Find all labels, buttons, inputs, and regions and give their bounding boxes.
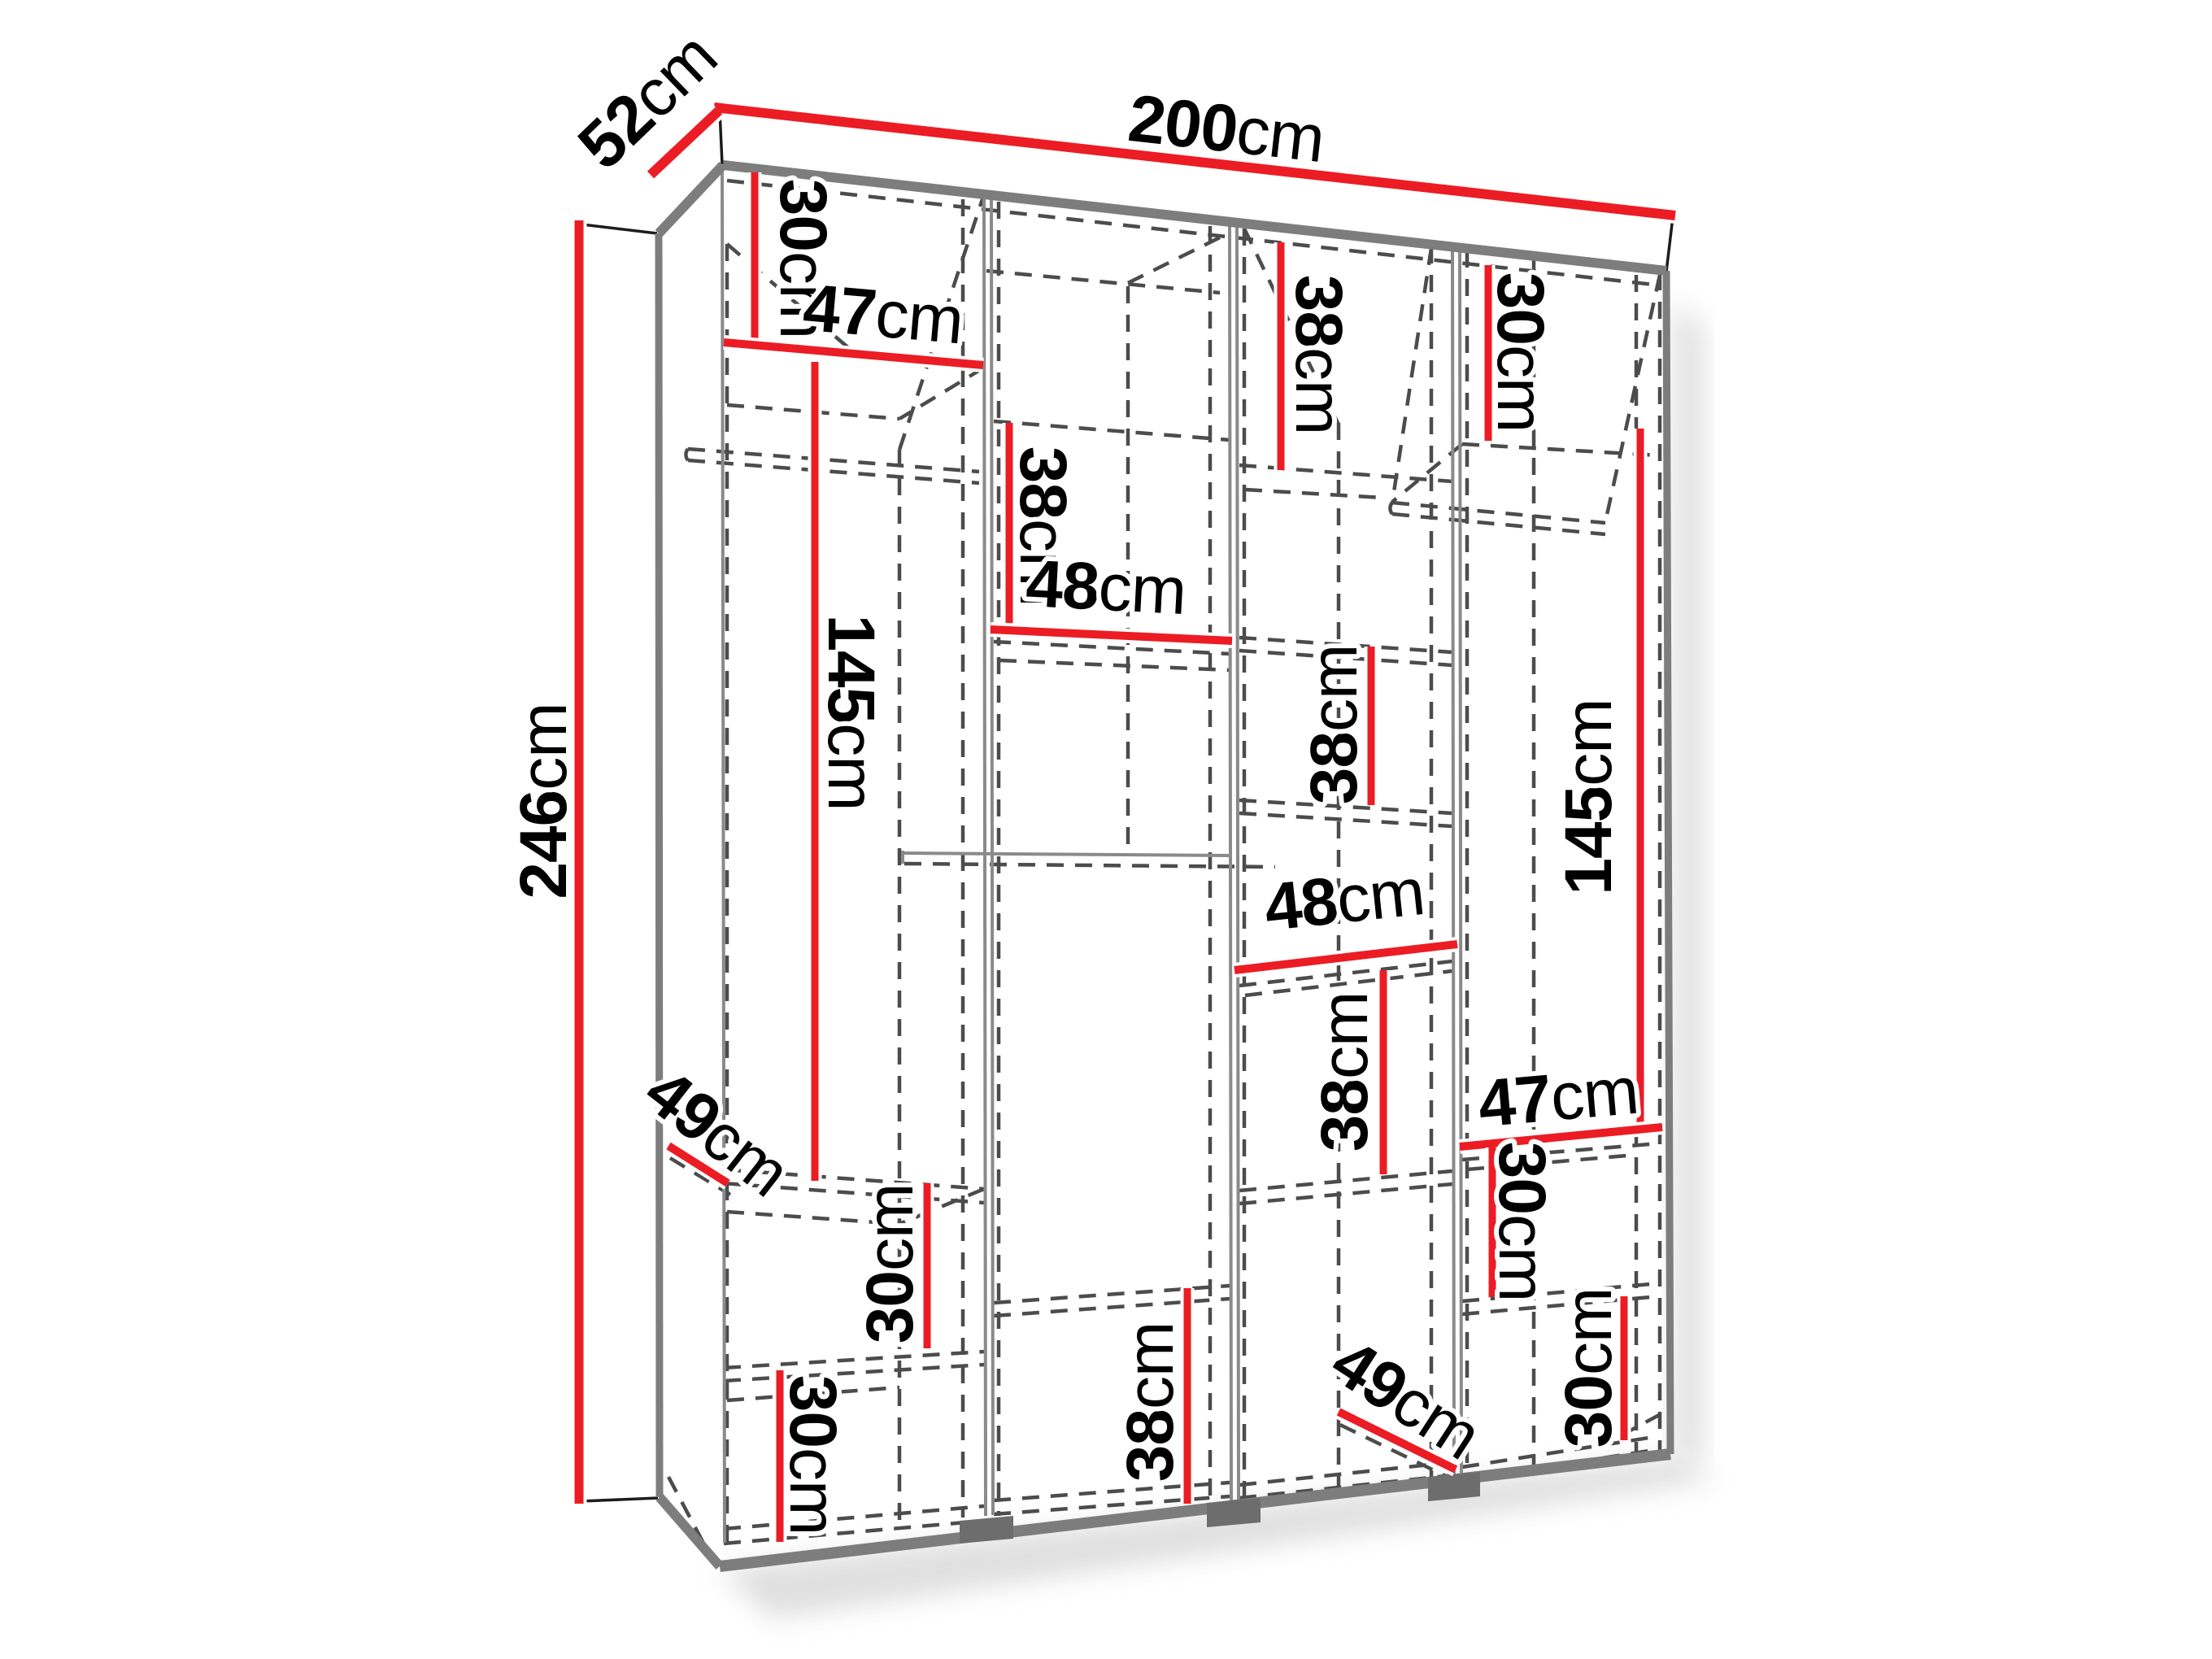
- col3-shelf3-front-bottom: [1239, 813, 1452, 826]
- height-dim-tick-top: [582, 224, 657, 233]
- partition-3-left: [1452, 248, 1454, 1481]
- dim-label-unit: cm: [1552, 1288, 1626, 1375]
- dim-label-value: 47: [1475, 1061, 1554, 1141]
- top-front-edge: [723, 165, 1666, 271]
- dim-label-col4_hanging_height: 145cm: [1552, 699, 1626, 895]
- right-side-shadow: [1672, 301, 1705, 1464]
- dim-label-col4_shelf_height_lower: 30cm: [1552, 1288, 1626, 1448]
- col3-shelf1-front: [1239, 465, 1452, 481]
- col1-rail-top: [688, 449, 979, 472]
- col1-floor-front: [724, 1506, 984, 1529]
- dim-label-value: 145: [1552, 786, 1626, 895]
- dim-label-col3_lower_shelf_height: 38cm: [1308, 992, 1382, 1152]
- col4-rail-bottom: [1392, 514, 1605, 534]
- dim-label-unit: cm: [1297, 645, 1371, 732]
- dim-label-col4_shelf_height_upper: 30cm: [1485, 1142, 1559, 1302]
- base-left-edge: [660, 1497, 720, 1566]
- col2-hanging-rail: [903, 853, 1229, 856]
- partition-3-right: [1460, 249, 1461, 1480]
- dim-label-value: 200: [1125, 81, 1241, 167]
- dim-label-total_height: 246cm: [507, 703, 581, 899]
- dim-label-value: 38: [1006, 446, 1080, 519]
- dim-label-value: 30: [1483, 272, 1557, 345]
- dim-label-unit: cm: [1485, 1214, 1559, 1301]
- col4-back-top-diagonal: [1605, 275, 1660, 522]
- dim-label-unit: cm: [1233, 94, 1328, 176]
- dim-label-col3_top_shelf_height: 38cm: [1282, 275, 1356, 435]
- dim-label-col2_width: 48cm: [1024, 546, 1187, 629]
- top-right-corner-edge: [1666, 217, 1673, 272]
- diagram-stage: 200cm52cm246cm30cm47cm38cm30cm38cm48cm14…: [0, 0, 2212, 1659]
- foot-partition-3: [1428, 1472, 1480, 1501]
- dim-label-col1_shelf_height_mid: 30cm: [853, 1184, 927, 1344]
- floor-shadow: [719, 1457, 1716, 1618]
- top-left-depth-edge: [659, 165, 723, 233]
- dim-label-col1_hanging_height: 145cm: [814, 614, 888, 810]
- col3-shelf1-back: [1245, 490, 1382, 498]
- dim-label-value: 47: [800, 271, 879, 351]
- dim-label-value: 145: [814, 614, 888, 723]
- dim-label-col2_bottom_shelf_height: 38cm: [1113, 1322, 1187, 1483]
- dim-label-unit: cm: [1308, 992, 1382, 1079]
- dim-label-unit: cm: [1113, 1322, 1187, 1409]
- dim-label-value: 48: [1261, 864, 1341, 945]
- col2-back-top-diagonal: [1128, 237, 1220, 283]
- dim-label-unit: cm: [507, 703, 581, 790]
- right-outer-edge: [1666, 271, 1670, 1454]
- col2-shelf1-front: [994, 421, 1230, 440]
- left-panel-inner-edge: [722, 167, 725, 1543]
- dim-label-col4_top_shelf_height: 30cm: [1483, 272, 1557, 433]
- dim-label-unit: cm: [1548, 1054, 1641, 1135]
- dim-label-unit: cm: [1282, 347, 1356, 434]
- partition-2-left: [1230, 223, 1231, 1500]
- foot-partition-2: [1207, 1498, 1261, 1527]
- col4-rail-top: [1392, 503, 1605, 523]
- dim-label-unit: cm: [1097, 551, 1188, 629]
- dim-label-unit: cm: [1483, 345, 1557, 432]
- dim-label-value: 30: [853, 1271, 927, 1343]
- dim-label-value: 38: [1308, 1079, 1382, 1152]
- col1-rail-bottom: [688, 460, 979, 483]
- col2-shelf2-back: [999, 660, 1230, 670]
- dim-label-col1_shelf_height_bottom: 30cm: [776, 1375, 850, 1535]
- dim-label-value: 38: [1113, 1409, 1187, 1482]
- dim-label-unit: cm: [1333, 855, 1427, 938]
- col2-shelf1-back: [986, 271, 1220, 293]
- partition-2-right: [1237, 224, 1239, 1500]
- dim-label-value: 38: [1297, 732, 1371, 804]
- dim-label-value: 30: [1485, 1142, 1559, 1214]
- dim-label-value: 38: [1282, 275, 1356, 347]
- dim-label-value: 30: [766, 179, 840, 251]
- dim-label-unit: cm: [873, 276, 966, 358]
- wardrobe-dimension-diagram: 200cm52cm246cm30cm47cm38cm30cm38cm48cm14…: [0, 0, 2212, 1659]
- dim-label-value: 30: [1552, 1375, 1626, 1448]
- col4-shelf1-front: [1462, 444, 1659, 455]
- col1-rail-end-cap: [686, 449, 688, 460]
- partition3-back-diagonal: [1392, 248, 1431, 503]
- dim-label-unit: cm: [853, 1184, 927, 1271]
- partition-1-left: [984, 195, 986, 1516]
- dim-label-col3_mid_shelf_height: 38cm: [1297, 645, 1371, 805]
- dim-label-col4_width: 47cm: [1475, 1054, 1641, 1142]
- dim-label-value: 246: [507, 790, 581, 899]
- col2-rail-back: [904, 864, 1275, 867]
- dim-label-value: 48: [1024, 546, 1100, 625]
- col1-shelf3-front-top: [724, 1352, 984, 1368]
- dim-label-total_depth: 52cm: [564, 19, 731, 183]
- dim-label-value: 30: [776, 1375, 850, 1448]
- dim-line-col2_width: [991, 629, 1232, 641]
- col4-rail-end-cap: [1390, 503, 1392, 514]
- left-outer-edge: [659, 233, 660, 1497]
- dim-label-col3_width: 48cm: [1261, 855, 1428, 945]
- dim-label-unit: cm: [776, 1448, 850, 1535]
- dim-label-unit: cm: [814, 723, 888, 810]
- height-dim-tick-bottom: [581, 1498, 658, 1501]
- partition-1-right: [991, 196, 993, 1515]
- dim-label-col1_width: 47cm: [800, 271, 966, 359]
- dim-label-unit: cm: [1552, 699, 1626, 786]
